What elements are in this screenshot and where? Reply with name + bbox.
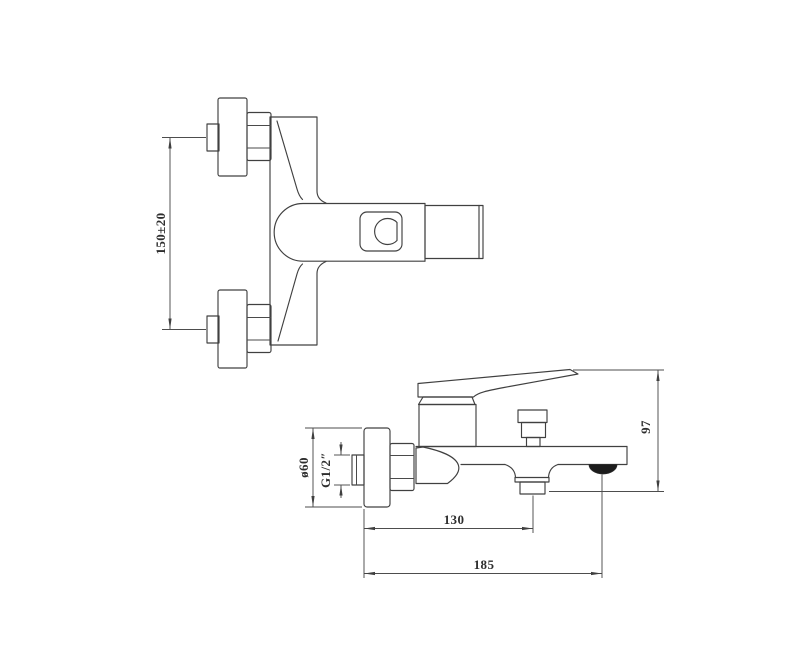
side-view-shower-boss-fillet-left <box>505 465 516 478</box>
arrowhead-down <box>656 481 659 492</box>
dimension-wall-to-shower-outlet: 130 <box>364 496 533 579</box>
eccentric-flange <box>218 98 247 176</box>
dimension-mounting-centers: 150±20 <box>153 138 206 330</box>
side-view-wall-end-casting <box>416 447 459 484</box>
top-view-wall-plate-outline <box>270 117 326 345</box>
side-view-shower-outlet-nut <box>520 482 545 494</box>
side-view-diverter-knob <box>518 410 547 447</box>
side-view-handle-assembly <box>418 370 578 447</box>
top-view-cartridge-housing <box>360 212 402 251</box>
dim-label-thread-size: G1/2″ <box>318 452 333 488</box>
top-view-plate-taper-lower <box>278 264 303 341</box>
eccentric-stub <box>207 124 219 151</box>
arrowhead-left <box>364 572 375 575</box>
eccentric-hex-nut <box>247 305 271 353</box>
dimension-thread-size: G1/2″ <box>318 442 350 498</box>
wall-flange-disc <box>364 428 390 507</box>
wall-hex-nut <box>390 444 414 491</box>
arrowhead-up <box>168 138 171 149</box>
diverter-cap <box>518 410 547 423</box>
top-view-upper-eccentric <box>207 98 271 176</box>
top-view: 150±20 <box>153 98 483 368</box>
side-view-shower-outlet-lip <box>515 478 549 483</box>
handle-base-cap <box>419 397 476 405</box>
arrowhead-up <box>339 485 342 496</box>
top-view-spout-block <box>425 206 483 259</box>
dim-label-flange-diameter: ø60 <box>296 457 311 478</box>
arrowhead-right <box>522 527 533 530</box>
diverter-stem <box>527 438 541 447</box>
arrowhead-down <box>311 496 314 507</box>
arrowhead-up <box>311 428 314 439</box>
dim-label-overall-height: 97 <box>638 420 653 434</box>
top-view-lower-eccentric <box>207 290 271 368</box>
arrowhead-up <box>656 370 659 381</box>
arrowhead-down <box>339 445 342 456</box>
top-view-plate-taper-upper <box>277 121 303 200</box>
spout-aerator <box>589 465 617 475</box>
arrowhead-right <box>591 572 602 575</box>
cartridge-body <box>419 405 476 447</box>
technical-drawing-page: 150±20 <box>0 0 800 667</box>
arrowhead-left <box>364 527 375 530</box>
eccentric-flange <box>218 290 247 368</box>
handle-lever <box>418 370 578 398</box>
arrowhead-down <box>168 319 171 330</box>
side-view-body-right-edge <box>558 447 627 465</box>
dim-label-wall-to-spout-outlet: 185 <box>474 557 495 572</box>
dim-label-mounting-centers: 150±20 <box>153 212 168 254</box>
top-view-cartridge-dome <box>375 219 397 245</box>
eccentric-stub <box>207 316 219 343</box>
side-view: ø60 G1/2″ 130 185 <box>296 370 664 579</box>
diverter-body <box>522 423 546 438</box>
side-view-wall-hardware <box>352 428 414 507</box>
technical-drawing-canvas: 150±20 <box>0 0 800 667</box>
eccentric-hex-nut <box>247 113 271 161</box>
g-half-inlet-stub <box>352 455 364 485</box>
dim-label-wall-to-shower-outlet: 130 <box>444 512 465 527</box>
side-view-shower-boss-fillet-right <box>549 465 559 478</box>
